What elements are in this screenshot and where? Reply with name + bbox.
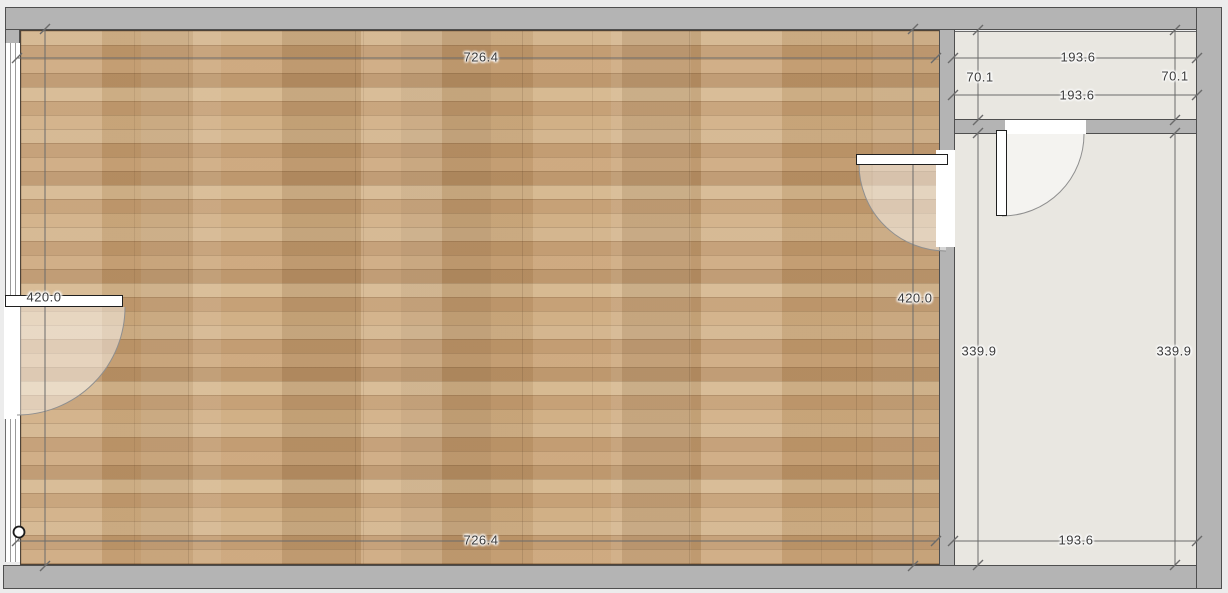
dim-main-bottom[interactable]: 726.4 (463, 533, 498, 548)
dim-main-left[interactable]: 420.0 (26, 290, 61, 305)
floor-plan-canvas: 726.4 726.4 420.0 420.0 193.6 193.6 70.1… (0, 0, 1228, 593)
door-opening-left (4, 296, 20, 419)
wall-right[interactable] (1196, 7, 1222, 589)
dim-side-bottom[interactable]: 193.6 (1058, 533, 1093, 548)
dim-side-right[interactable]: 339.9 (1156, 344, 1191, 359)
wall-bottom[interactable] (3, 565, 1222, 589)
main-room-floor[interactable] (20, 30, 940, 565)
door-leaf-hall[interactable] (996, 130, 1007, 216)
dim-hall-inner[interactable]: 193.6 (1059, 88, 1094, 103)
wall-divider[interactable] (939, 29, 955, 566)
window-left-upper[interactable] (5, 43, 20, 296)
door-opening-hall (1005, 120, 1086, 134)
dim-side-left[interactable]: 339.9 (961, 344, 996, 359)
dim-hall-right[interactable]: 70.1 (1161, 69, 1188, 84)
wall-left-stub[interactable] (5, 29, 20, 44)
dim-main-right[interactable]: 420.0 (897, 291, 932, 306)
dim-hall-left[interactable]: 70.1 (966, 70, 993, 85)
wall-top[interactable] (5, 7, 1222, 30)
dim-main-top[interactable]: 726.4 (463, 50, 498, 65)
window-left-lower[interactable] (5, 419, 20, 562)
door-leaf-left[interactable] (5, 295, 123, 307)
door-leaf-divider[interactable] (856, 154, 948, 165)
dim-hall-top[interactable]: 193.6 (1060, 50, 1095, 65)
